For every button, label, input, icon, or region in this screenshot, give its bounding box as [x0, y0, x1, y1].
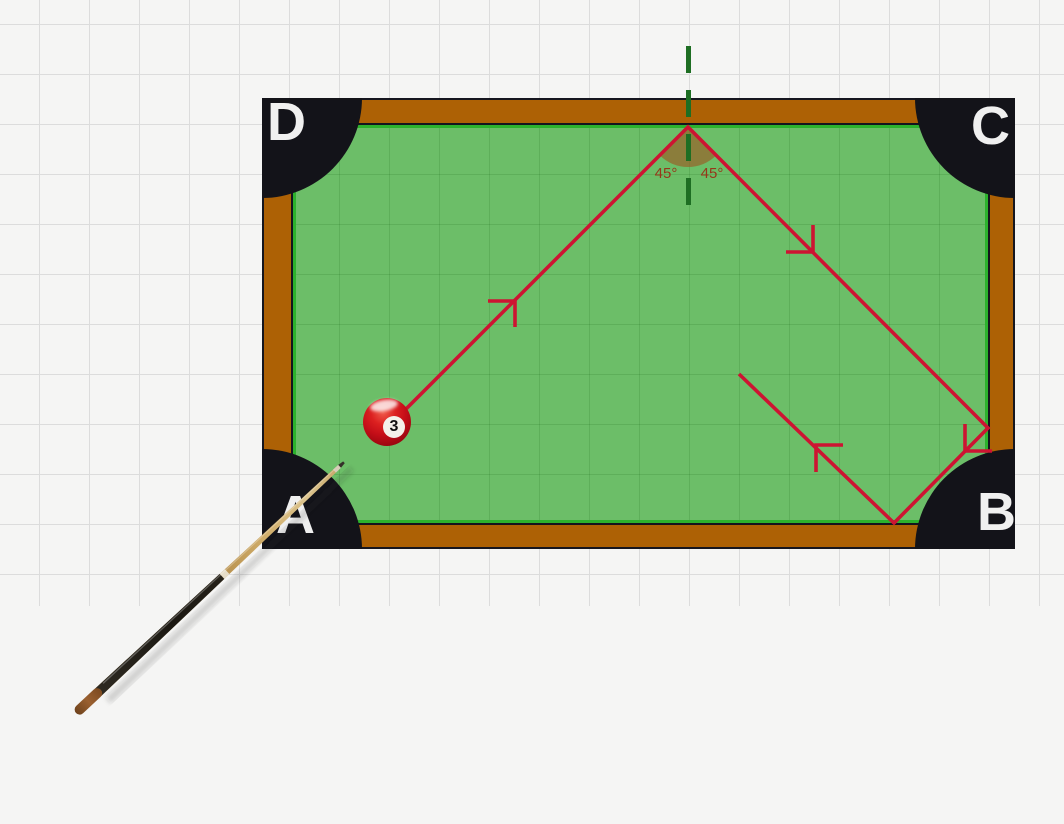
ball-3[interactable]: 3: [363, 398, 411, 446]
cue-butt-cap: [73, 686, 105, 717]
corner-label-b: B: [977, 485, 1016, 539]
corner-label-a: A: [276, 488, 315, 542]
corner-label-d: D: [267, 95, 306, 149]
ball-number: 3: [383, 416, 405, 438]
corner-label-c: C: [971, 99, 1010, 153]
billiard-table-felt: [293, 125, 988, 523]
billiards-diagram-canvas: D C A B: [0, 0, 1064, 824]
